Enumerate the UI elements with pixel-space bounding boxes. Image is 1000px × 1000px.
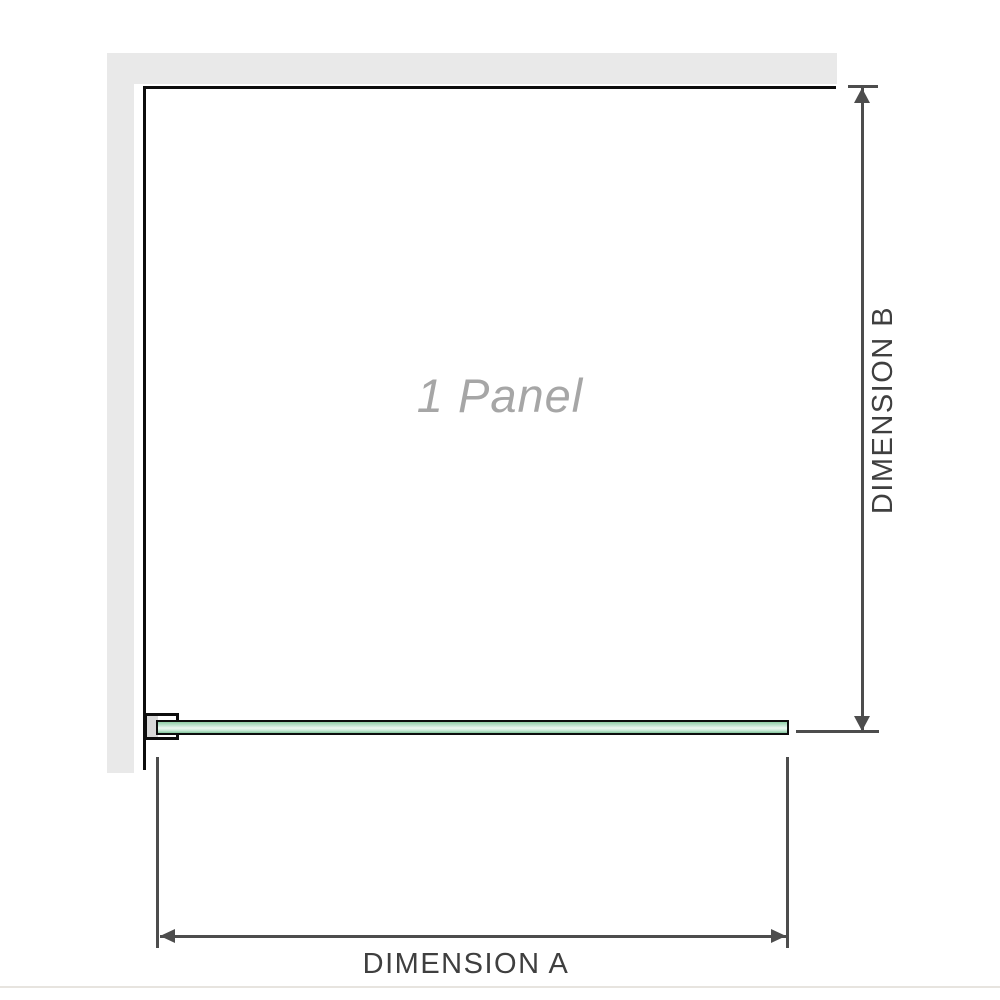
panel-left-edge <box>143 86 146 770</box>
dimension-a-extension-right <box>786 757 789 948</box>
dimension-a-line <box>160 935 786 938</box>
dimension-a-extension-left <box>156 757 159 948</box>
wall-top <box>108 53 837 84</box>
arrow-left-icon <box>160 929 175 943</box>
dimension-b-label: DIMENSION B <box>863 210 903 610</box>
arrow-up-icon <box>854 88 870 103</box>
page-bottom-rule <box>0 986 1000 988</box>
arrow-right-icon <box>771 929 786 943</box>
panel-top-edge <box>144 86 836 89</box>
shower-panel-dimension-diagram: 1 Panel DIMENSION B DIMENSION A <box>0 0 1000 1000</box>
arrow-down-icon <box>854 716 870 731</box>
glass-panel-bar <box>156 720 789 735</box>
panel-count-label: 1 Panel <box>350 368 650 424</box>
dimension-a-label: DIMENSION A <box>316 948 616 980</box>
wall-left <box>107 53 134 773</box>
